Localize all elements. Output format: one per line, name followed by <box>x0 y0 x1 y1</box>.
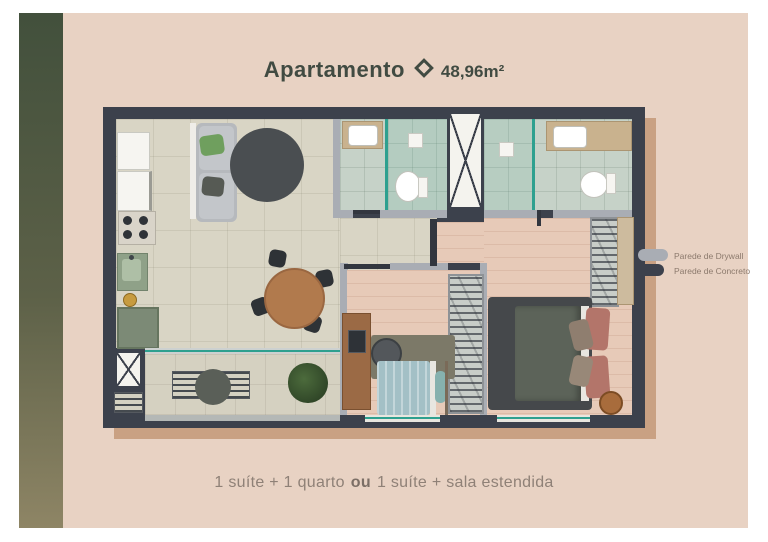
shower-valve <box>499 142 514 157</box>
fruit-bowl <box>123 293 137 307</box>
oven-counter <box>117 171 152 211</box>
plant <box>288 363 328 403</box>
bathroom2-door <box>537 210 541 226</box>
shower-glass <box>385 119 388 210</box>
balcony-table <box>195 369 231 405</box>
bathroom1-vanity <box>342 121 383 149</box>
burner-icon <box>123 216 132 225</box>
dining-table <box>264 268 325 329</box>
shower-valve <box>408 133 423 148</box>
double-bed <box>515 306 612 401</box>
duvet <box>515 306 581 401</box>
sink-basin <box>122 259 141 281</box>
page-title: Apartamento48,96m² <box>0 57 768 83</box>
glass-line <box>365 417 440 419</box>
bathroom1-south-wall <box>380 210 447 218</box>
burner-icon <box>139 230 148 239</box>
bedroom2-north-wall <box>390 263 448 270</box>
bathroom2-south-wall <box>484 210 537 218</box>
apartment-title: Apartamento <box>264 57 405 82</box>
green-pillow <box>199 133 226 156</box>
caption-before: 1 suíte + 1 quarto <box>214 474 344 491</box>
bedroom2-window <box>365 415 440 422</box>
balcony-sill <box>145 415 340 421</box>
green-gradient-strip <box>19 13 63 528</box>
ventilation-shaft <box>447 111 484 210</box>
shower-glass <box>532 119 535 210</box>
faucet-icon <box>129 255 134 260</box>
master-bedroom-door <box>430 219 437 266</box>
desk <box>342 313 371 410</box>
ac-grill <box>114 392 143 413</box>
ottoman <box>599 391 623 415</box>
kitchen-sink <box>117 253 148 291</box>
round-rug <box>230 128 304 202</box>
legend-label-concrete: Parede de Concreto <box>674 266 750 276</box>
master-window <box>497 415 590 422</box>
floor-plan <box>103 107 645 428</box>
utility-shaft <box>114 350 143 389</box>
legend-label-drywall: Parede de Drywall <box>674 251 743 261</box>
apartment-area: 48,96m² <box>441 62 504 81</box>
refrigerator <box>117 132 150 170</box>
bathroom1-west-wall <box>333 119 340 210</box>
burner-icon <box>139 216 148 225</box>
dining-chair <box>268 249 288 269</box>
caption: 1 suíte + 1 quartoou1 suíte + sala esten… <box>0 474 768 492</box>
master-closet <box>590 217 619 307</box>
green-sideboard <box>117 307 159 349</box>
laptop <box>348 330 366 353</box>
toilet <box>580 171 608 198</box>
concrete-swatch <box>638 264 664 276</box>
master-entry-floor <box>437 222 484 263</box>
bathroom1-door <box>353 210 380 214</box>
headboard <box>445 361 448 415</box>
bathroom2-sink <box>553 126 587 148</box>
glass-line <box>145 350 340 352</box>
master-closet-shelf <box>617 217 634 305</box>
shower-area <box>484 119 532 210</box>
single-bed <box>377 361 448 415</box>
bathroom2-vanity <box>546 121 632 151</box>
bathroom1-south-wall <box>333 210 353 218</box>
caption-after: 1 suíte + sala estendida <box>377 474 554 491</box>
sliding-glass-door <box>145 348 340 354</box>
bathroom1-sink <box>348 125 378 146</box>
toilet-tank <box>606 173 616 194</box>
gray-pillow <box>201 176 225 197</box>
toilet-tank <box>418 177 428 198</box>
drywall-swatch <box>638 249 668 261</box>
bedroom2-door <box>344 264 390 269</box>
glass-line <box>497 417 590 419</box>
caption-connector: ou <box>351 474 371 491</box>
duvet <box>377 361 430 415</box>
stove-cooktop <box>118 211 156 245</box>
diamond-icon <box>414 58 434 78</box>
burner-icon <box>123 230 132 239</box>
